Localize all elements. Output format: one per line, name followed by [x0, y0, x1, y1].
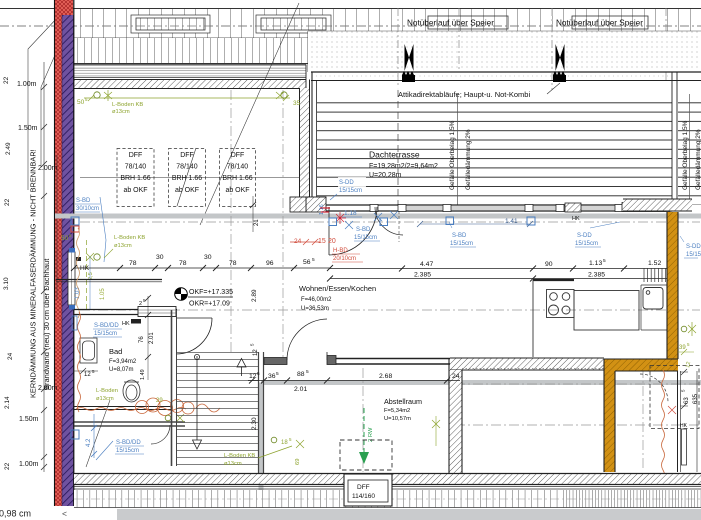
svg-text:F=19,28m2/2=9,64m2: F=19,28m2/2=9,64m2 [369, 163, 438, 170]
svg-text:F=5,34m2: F=5,34m2 [384, 408, 410, 414]
svg-text:2.30: 2.30 [251, 417, 258, 430]
svg-text:2: 2 [139, 301, 142, 307]
svg-text:22: 22 [4, 462, 11, 470]
svg-text:DFF: DFF [180, 152, 194, 159]
svg-text:78/140: 78/140 [227, 164, 249, 171]
svg-text:2.68: 2.68 [379, 373, 392, 380]
svg-text:Abstellraum: Abstellraum [384, 397, 422, 406]
svg-text:OKF=+17.335: OKF=+17.335 [189, 289, 233, 296]
svg-text:S-DD: S-DD [686, 244, 701, 250]
svg-text:15/15cm: 15/15cm [116, 448, 139, 454]
svg-text:39: 39 [679, 345, 686, 351]
svg-text:1.50m: 1.50m [18, 125, 38, 132]
svg-text:S-BD/DD: S-BD/DD [116, 440, 141, 446]
svg-text:20: 20 [328, 238, 336, 245]
svg-text:50: 50 [77, 99, 85, 106]
svg-text:Gefälle Oberbelag 1,5%: Gefälle Oberbelag 1,5% [682, 120, 689, 190]
svg-text:2.89: 2.89 [251, 289, 258, 302]
svg-text:5: 5 [257, 371, 260, 377]
svg-text:1.16: 1.16 [319, 204, 325, 215]
svg-text:BRH 1.66: BRH 1.66 [172, 175, 202, 182]
svg-text:<: < [62, 509, 67, 519]
svg-text:2.01: 2.01 [294, 386, 307, 393]
svg-text:DFF: DFF [231, 152, 245, 159]
svg-text:12: 12 [249, 373, 257, 380]
svg-text:2.01: 2.01 [149, 332, 155, 344]
svg-text:88: 88 [297, 371, 305, 378]
svg-text:2.00m: 2.00m [38, 165, 58, 172]
svg-text:78/140: 78/140 [176, 164, 198, 171]
svg-text:30: 30 [156, 254, 164, 261]
svg-text:78/140: 78/140 [125, 164, 147, 171]
svg-text:L-Boden: L-Boden [96, 388, 118, 394]
svg-text:BRH 1.66: BRH 1.66 [120, 175, 150, 182]
svg-text:S-DD: S-DD [339, 180, 354, 186]
svg-text:30: 30 [204, 254, 212, 261]
svg-text:24: 24 [294, 238, 302, 245]
svg-text:L-Boden KB: L-Boden KB [114, 235, 145, 241]
svg-text:5: 5 [276, 371, 279, 377]
svg-text:24: 24 [452, 373, 460, 380]
svg-text:1.49: 1.49 [140, 369, 146, 380]
svg-text:30/10cm: 30/10cm [76, 206, 99, 212]
svg-text:ø13cm: ø13cm [112, 109, 130, 115]
svg-text:20/10cm: 20/10cm [333, 256, 356, 262]
svg-text:1.00m: 1.00m [19, 461, 39, 468]
svg-text:29: 29 [156, 398, 163, 404]
svg-text:15/15cm: 15/15cm [354, 235, 377, 241]
svg-text:Gefälledämmung 2%: Gefälledämmung 2% [695, 129, 701, 190]
svg-text:DFF: DFF [129, 152, 143, 159]
svg-text:1.18: 1.18 [344, 210, 357, 217]
svg-text:35: 35 [293, 100, 301, 107]
svg-text:15/15cm: 15/15cm [450, 241, 473, 247]
svg-text:U=8,07m: U=8,07m [109, 367, 134, 373]
svg-text:56: 56 [303, 259, 311, 266]
svg-text:96: 96 [266, 260, 274, 267]
svg-text:Dachterrasse: Dachterrasse [369, 150, 420, 160]
svg-text:ab OKF: ab OKF [175, 187, 199, 194]
svg-text:ø13cm: ø13cm [114, 243, 132, 249]
svg-text:78: 78 [179, 260, 187, 267]
svg-text:ø13cm: ø13cm [96, 396, 114, 402]
svg-text:L-Boden KB: L-Boden KB [112, 102, 143, 108]
svg-text:HK: HK [122, 321, 130, 327]
svg-text:S-BD: S-BD [76, 198, 91, 204]
svg-text:4.2: 4.2 [86, 438, 92, 447]
svg-text:5: 5 [603, 258, 606, 264]
svg-text:2.14: 2.14 [4, 396, 11, 409]
svg-text:18: 18 [281, 440, 288, 446]
svg-text:S-BD: S-BD [356, 227, 371, 233]
svg-text:Attikadirektabläufe; Haupt-u.: Attikadirektabläufe; Haupt-u. Not-Kombi [398, 90, 530, 99]
svg-text:635: 635 [693, 393, 699, 404]
svg-text:1.05: 1.05 [100, 288, 106, 300]
svg-text:DFF: DFF [357, 484, 370, 491]
svg-text:S-BD: S-BD [452, 233, 467, 239]
svg-text:3.10: 3.10 [3, 277, 10, 290]
svg-text:F=3,94m2: F=3,94m2 [109, 359, 137, 365]
svg-text:1.52: 1.52 [648, 260, 661, 267]
svg-text:1.00m: 1.00m [17, 81, 37, 88]
svg-text:22: 22 [4, 198, 11, 206]
svg-text:HK: HK [80, 265, 90, 272]
svg-text:BRH 1.66: BRH 1.66 [222, 175, 252, 182]
svg-text:1.13: 1.13 [589, 260, 602, 267]
svg-text:Brandwand (neu) 30 cm über Dac: Brandwand (neu) 30 cm über Dachhaut [42, 258, 51, 390]
svg-text:22: 22 [3, 76, 10, 84]
svg-text:L-Boden KB: L-Boden KB [224, 453, 255, 459]
svg-text:2,5: 2,5 [88, 272, 94, 280]
svg-text:12: 12 [685, 361, 692, 368]
svg-text:76: 76 [139, 336, 145, 343]
svg-text:69: 69 [295, 459, 301, 465]
svg-text:21: 21 [254, 219, 260, 226]
svg-text:H-BD: H-BD [333, 248, 348, 254]
svg-text:2.385: 2.385 [414, 272, 431, 279]
svg-text:50: 50 [61, 235, 69, 242]
svg-text:5: 5 [306, 369, 309, 375]
svg-text:ø13cm: ø13cm [224, 461, 242, 467]
svg-text:S-DD: S-DD [577, 233, 592, 239]
svg-text:Gefälle Oberbelag 1,5%: Gefälle Oberbelag 1,5% [449, 120, 456, 190]
svg-text:Gefälledämmung 2%: Gefälledämmung 2% [465, 129, 472, 190]
svg-text:90: 90 [545, 261, 553, 268]
svg-text:1.50m: 1.50m [19, 416, 39, 423]
svg-text:78: 78 [129, 260, 137, 267]
svg-text:15: 15 [318, 238, 326, 245]
svg-text:OKR=+17.09: OKR=+17.09 [189, 301, 230, 308]
svg-text:ab OKF: ab OKF [225, 187, 249, 194]
svg-text:15/15cm: 15/15cm [94, 331, 117, 337]
svg-text:78: 78 [229, 260, 237, 267]
svg-text:U=10,57m: U=10,57m [384, 416, 411, 422]
svg-text:U=36,53m: U=36,53m [301, 306, 329, 312]
svg-text:36: 36 [268, 373, 276, 380]
svg-text:24: 24 [7, 352, 14, 360]
svg-text:ab OKF: ab OKF [123, 187, 147, 194]
svg-text:Bad: Bad [109, 347, 122, 356]
svg-text:2.49: 2.49 [5, 142, 12, 155]
svg-text:4.47: 4.47 [420, 261, 433, 268]
svg-text:HK: HK [572, 216, 580, 222]
svg-text:U=20,28m: U=20,28m [369, 172, 402, 179]
svg-text:2.385: 2.385 [588, 272, 605, 279]
svg-text:0,98 cm: 0,98 cm [0, 509, 31, 519]
svg-text:15/15cm: 15/15cm [339, 188, 362, 194]
svg-text:15/15: 15/15 [686, 252, 701, 258]
svg-text:HK: HK [680, 423, 688, 429]
svg-text:63: 63 [684, 397, 690, 404]
svg-text:114/160: 114/160 [352, 493, 375, 500]
svg-text:S-BD/DD: S-BD/DD [94, 323, 119, 329]
svg-text:12: 12 [84, 372, 91, 378]
svg-text:15/15cm: 15/15cm [575, 241, 598, 247]
svg-text:F=46,00m2: F=46,00m2 [301, 297, 332, 303]
svg-text:5: 5 [312, 257, 315, 263]
svg-text:KERNDÄMMUNG AUS MINERALFASERDÄ: KERNDÄMMUNG AUS MINERALFASERDÄMMUNG - NI… [29, 149, 38, 398]
svg-text:Wohnen/Essen/Kochen: Wohnen/Essen/Kochen [299, 284, 376, 293]
